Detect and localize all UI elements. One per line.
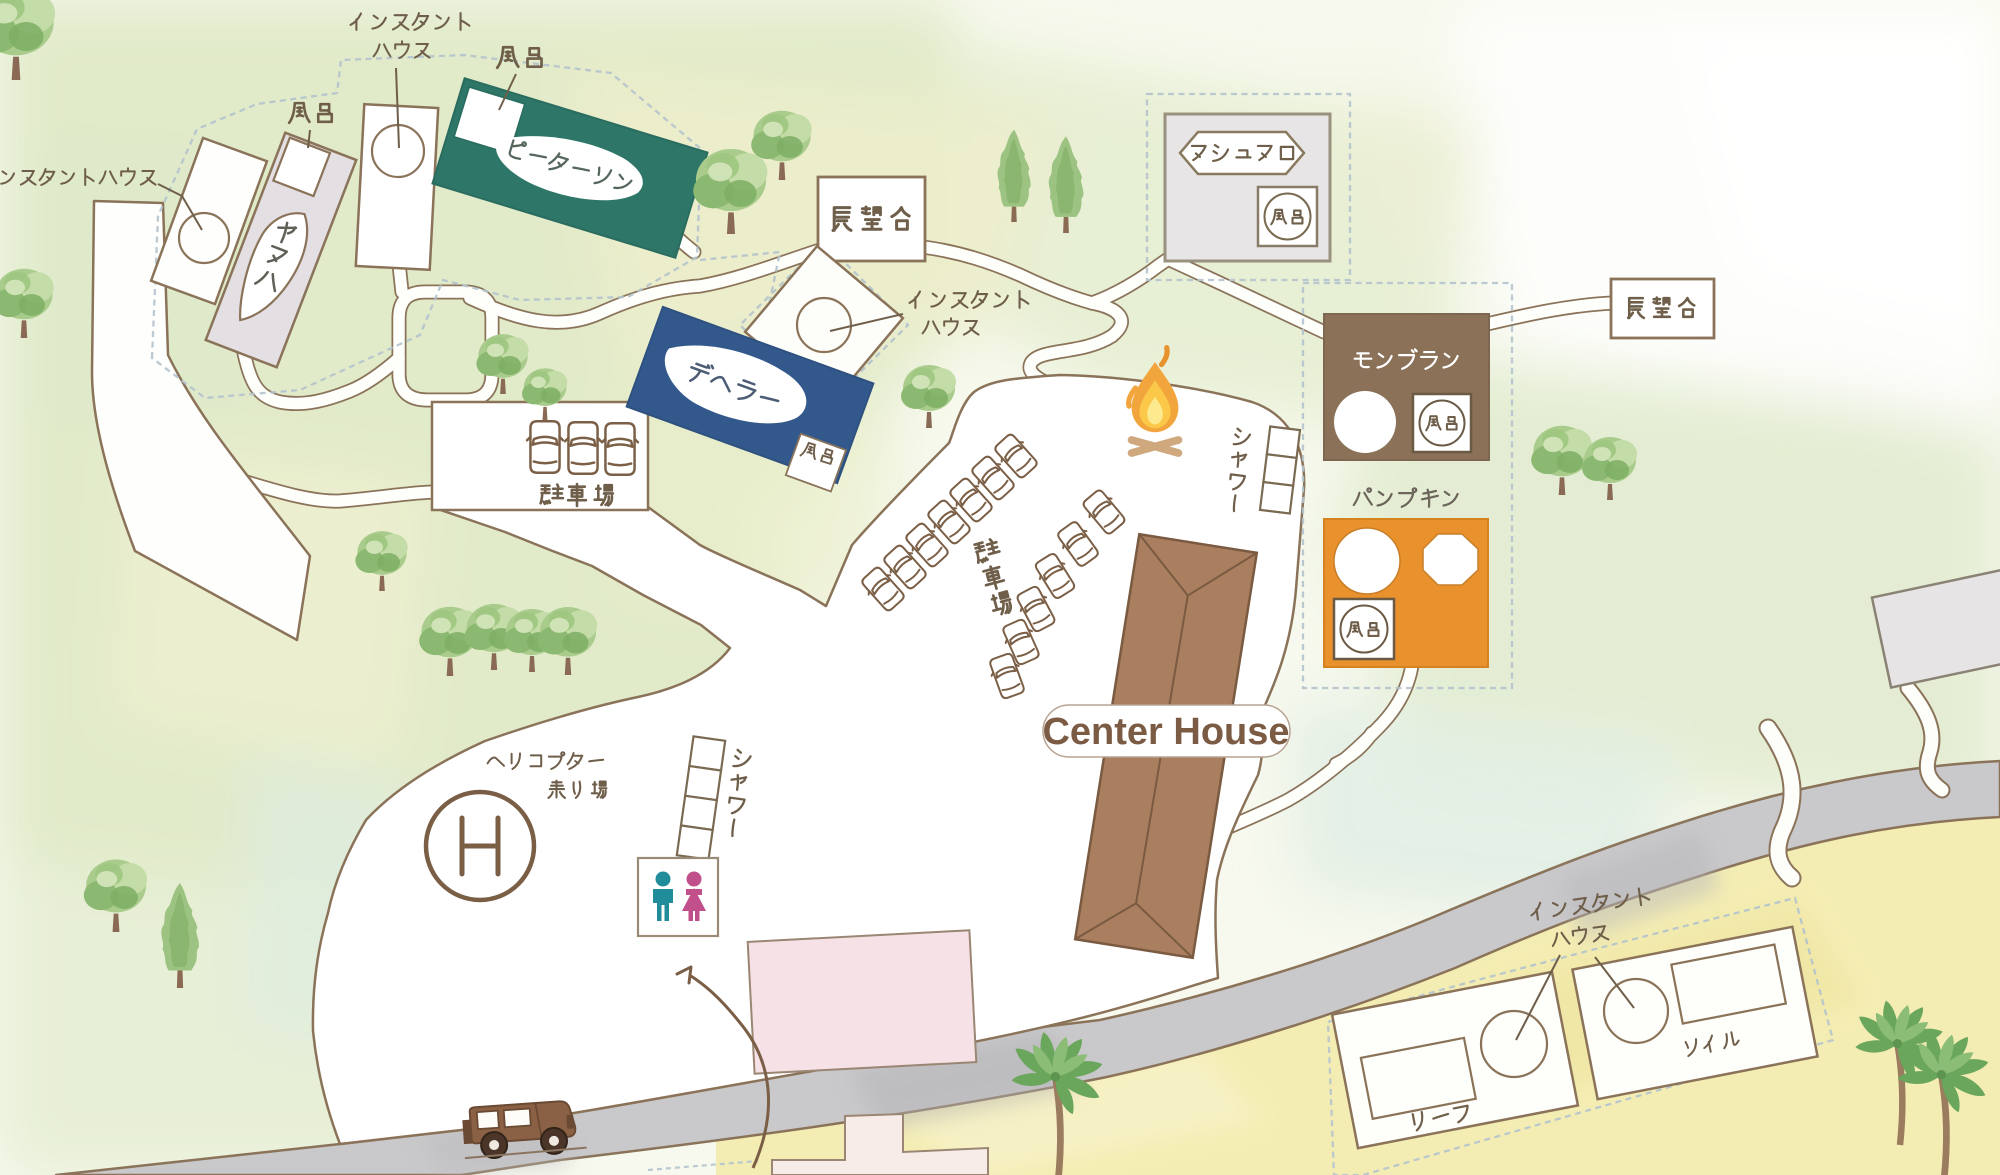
svg-text:Center House: Center House (1042, 711, 1289, 753)
